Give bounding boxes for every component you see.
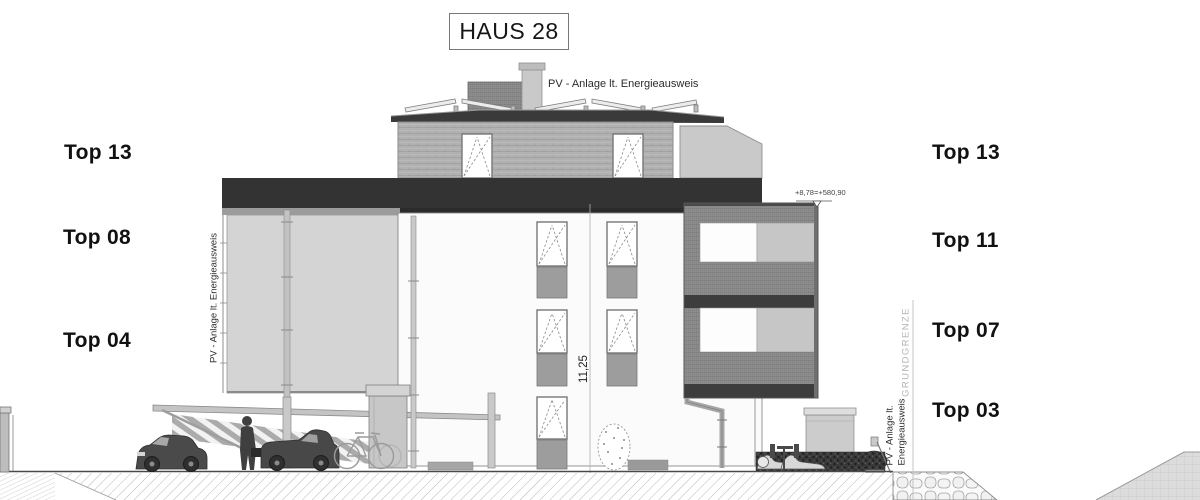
unit-label-left-top04: Top 04	[63, 329, 131, 353]
window	[607, 310, 637, 386]
chimney	[519, 63, 545, 112]
window	[607, 222, 637, 298]
pv-right-annotation: PV - Anlage lt. Energieausweis	[885, 398, 908, 465]
penthouse-window	[462, 134, 492, 178]
unit-label-right-top13: Top 13	[932, 141, 1000, 165]
window	[537, 397, 567, 469]
unit-label-left-top08: Top 08	[63, 226, 131, 250]
level-mark-text: +8,78=+580,90	[795, 188, 846, 197]
height-dimension-text: 11,25	[578, 355, 590, 383]
unit-label-right-top07: Top 07	[932, 319, 1000, 343]
boundary-wall-left	[0, 407, 13, 472]
penthouse-window	[613, 134, 643, 178]
elevation-drawing: HAUS 28 PV - Anlage lt. Energieausweis T…	[0, 0, 1200, 500]
embankment	[1096, 452, 1200, 500]
window	[537, 310, 567, 386]
pv-right-line2: Energieausweis	[896, 398, 908, 465]
property-boundary-label: GRUNDGRENZE	[901, 307, 912, 397]
title-text: HAUS 28	[459, 18, 558, 45]
carport-post	[488, 393, 495, 468]
earth-hatch-fine	[0, 473, 55, 500]
earth-hatch	[55, 473, 893, 500]
roof-slab	[391, 110, 724, 123]
stair-pillar	[366, 385, 410, 468]
penthouse-facade	[398, 122, 673, 178]
entrance-mat	[428, 462, 473, 470]
entrance-mat	[628, 460, 668, 470]
unit-label-right-top11: Top 11	[932, 229, 999, 253]
pv-roof-annotation: PV - Anlage lt. Energieausweis	[548, 78, 698, 90]
pv-facade-wall	[220, 215, 398, 393]
penthouse-side-massing	[680, 126, 762, 178]
pv-right-line1: PV - Anlage lt.	[885, 398, 897, 465]
pv-left-wall-annotation: PV - Anlage lt. Energieausweis	[209, 233, 220, 363]
drawing-title: HAUS 28	[449, 13, 569, 50]
balcony-block	[684, 203, 818, 398]
unit-label-right-top03: Top 03	[932, 399, 1000, 423]
building-elevation-graphic	[0, 0, 1200, 500]
shrub	[598, 424, 630, 470]
unit-label-left-top13: Top 13	[64, 141, 132, 165]
parapet-band	[222, 178, 762, 215]
stone-wall	[893, 472, 997, 500]
window	[537, 222, 567, 298]
